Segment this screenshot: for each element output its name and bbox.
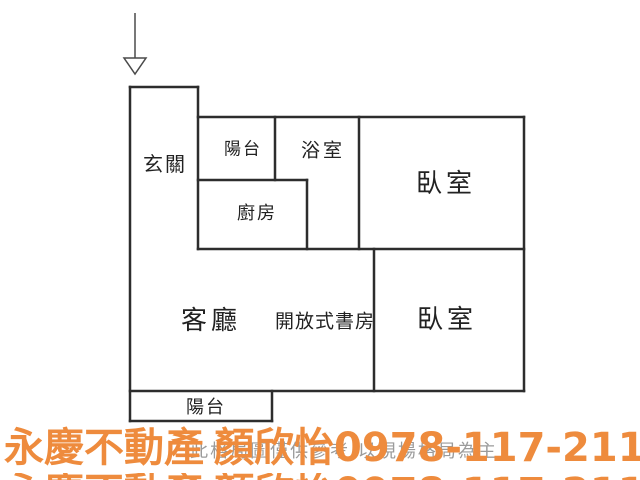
room-label-kitchen: 廚房 bbox=[237, 205, 277, 223]
room-label-living-room: 客廳 bbox=[181, 308, 241, 334]
agent-phone-repeat: 0978-117-211 bbox=[334, 473, 640, 480]
agent-contact-line-clipped: 永慶不動產顏欣怡0978-117-211 bbox=[4, 473, 640, 480]
room-label-bedroom-bottom-right: 臥室 bbox=[417, 307, 477, 333]
brand-name: 永慶不動產 bbox=[4, 425, 204, 471]
floorplan-canvas: 玄關 陽台 浴室 臥室 廚房 客廳 開放式書房 臥室 陽台 此格局圖僅供參考 以… bbox=[0, 0, 640, 480]
agent-contact-line: 永慶不動產顏欣怡0978-117-211 bbox=[4, 428, 640, 468]
brand-name-repeat: 永慶不動產 bbox=[4, 473, 204, 480]
walls bbox=[130, 87, 524, 421]
agent-phone: 0978-117-211 bbox=[334, 425, 640, 471]
floorplan-drawing bbox=[0, 0, 640, 480]
room-label-balcony-top: 陽台 bbox=[224, 142, 262, 159]
agent-contact-line-repeat: 永慶不動產顏欣怡0978-117-211 bbox=[4, 473, 640, 480]
agent-name: 顏欣怡 bbox=[214, 425, 334, 471]
room-label-entry: 玄關 bbox=[143, 154, 187, 174]
room-label-balcony-bottom: 陽台 bbox=[186, 399, 226, 417]
room-label-bathroom: 浴室 bbox=[301, 142, 345, 161]
agent-name-repeat: 顏欣怡 bbox=[214, 473, 334, 480]
room-label-bedroom-top-right: 臥室 bbox=[416, 171, 476, 197]
entrance-arrow-icon bbox=[124, 13, 146, 74]
room-label-open-study: 開放式書房 bbox=[275, 313, 375, 332]
